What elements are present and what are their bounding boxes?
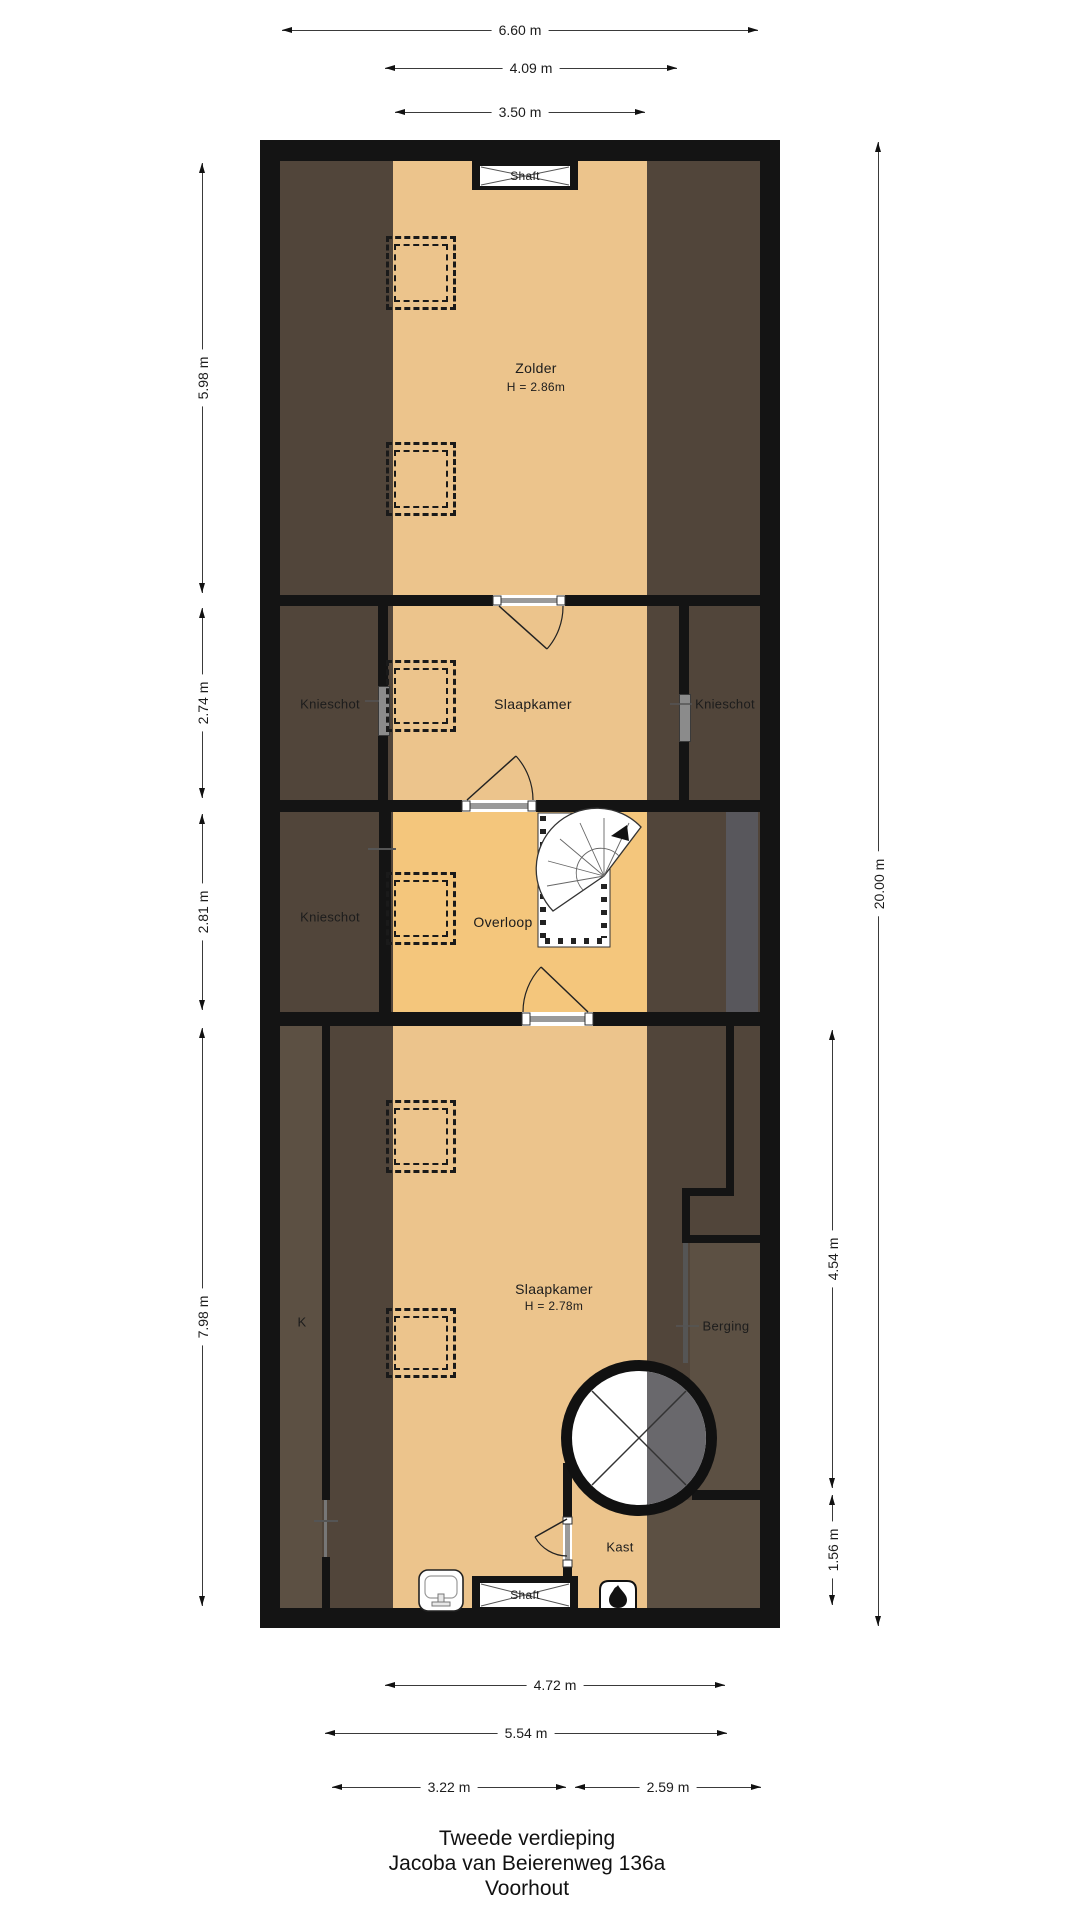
spiral-stair-icon <box>536 808 641 947</box>
arrowhead-icon <box>385 65 395 71</box>
dim-bottom-472: 4.72 m <box>385 1685 725 1686</box>
label-k: K <box>298 1315 307 1330</box>
title-address: Jacoba van Beierenweg 136a <box>389 1851 666 1876</box>
dim-left-598: 5.98 m <box>202 163 203 593</box>
arrowhead-icon <box>667 65 677 71</box>
label-knieschot-links: Knieschot <box>300 697 360 712</box>
label-knieschot-overloop: Knieschot <box>300 910 360 925</box>
arrowhead-icon <box>199 583 205 593</box>
label-zolder: Zolder <box>515 360 556 376</box>
arrowhead-icon <box>199 1596 205 1606</box>
title-city: Voorhout <box>389 1876 666 1901</box>
label-kast: Kast <box>606 1540 633 1555</box>
dim-top-660: 6.60 m <box>282 30 758 31</box>
door-slaapkamer-icon <box>462 756 536 812</box>
arrowhead-icon <box>829 1478 835 1488</box>
floorplan-canvas: Zolder H = 2.86m Slaapkamer Knieschot Kn… <box>0 0 1080 1920</box>
arrowhead-icon <box>715 1682 725 1688</box>
arrowhead-icon <box>875 142 881 152</box>
arrowhead-icon <box>717 1730 727 1736</box>
arrowhead-icon <box>829 1030 835 1040</box>
label-overloop: Overloop <box>473 914 532 930</box>
dim-top-350: 3.50 m <box>395 112 645 113</box>
arrowhead-icon <box>395 109 405 115</box>
plan-details <box>0 0 1080 1920</box>
arrowhead-icon <box>875 1616 881 1626</box>
door-overloop-icon <box>522 967 593 1026</box>
door-zolder-icon <box>493 595 565 649</box>
arrowhead-icon <box>556 1784 566 1790</box>
washbasin-icon <box>419 1570 463 1611</box>
arrowhead-icon <box>751 1784 761 1790</box>
label-shaft-boven: Shaft <box>510 169 540 183</box>
label-knieschot-rechts: Knieschot <box>695 697 755 712</box>
arrowhead-icon <box>575 1784 585 1790</box>
arrowhead-icon <box>385 1682 395 1688</box>
chimney-circle-icon <box>561 1360 717 1516</box>
arrowhead-icon <box>199 1028 205 1038</box>
label-zolder-height: H = 2.86m <box>507 380 565 394</box>
arrowhead-icon <box>199 608 205 618</box>
arrowhead-icon <box>199 1000 205 1010</box>
label-slaapkamer-onder: Slaapkamer <box>515 1281 593 1297</box>
label-slaapkamer-boven: Slaapkamer <box>494 696 572 712</box>
fireplace-icon <box>600 1581 636 1609</box>
dim-left-274: 2.74 m <box>202 608 203 798</box>
arrowhead-icon <box>332 1784 342 1790</box>
dim-right-2000: 20.00 m <box>878 142 879 1626</box>
label-shaft-onder: Shaft <box>510 1588 540 1602</box>
arrowhead-icon <box>325 1730 335 1736</box>
door-kast-icon <box>535 1517 572 1567</box>
dim-left-281: 2.81 m <box>202 814 203 1010</box>
label-slaapkamer-onder-height: H = 2.78m <box>525 1299 583 1313</box>
title-floor: Tweede verdieping <box>389 1826 666 1851</box>
dim-top-409: 4.09 m <box>385 68 677 69</box>
dim-bottom-259: 2.59 m <box>575 1787 761 1788</box>
dim-right-454: 4.54 m <box>832 1030 833 1488</box>
arrowhead-icon <box>282 27 292 33</box>
arrowhead-icon <box>635 109 645 115</box>
arrowhead-icon <box>199 788 205 798</box>
arrowhead-icon <box>829 1595 835 1605</box>
dim-left-798: 7.98 m <box>202 1028 203 1606</box>
label-berging: Berging <box>703 1319 750 1334</box>
dim-bottom-554: 5.54 m <box>325 1733 727 1734</box>
dim-bottom-322: 3.22 m <box>332 1787 566 1788</box>
arrowhead-icon <box>829 1495 835 1505</box>
arrowhead-icon <box>199 163 205 173</box>
plan-title: Tweede verdieping Jacoba van Beierenweg … <box>389 1826 666 1901</box>
arrowhead-icon <box>199 814 205 824</box>
arrowhead-icon <box>748 27 758 33</box>
dim-right-156: 1.56 m <box>832 1495 833 1605</box>
